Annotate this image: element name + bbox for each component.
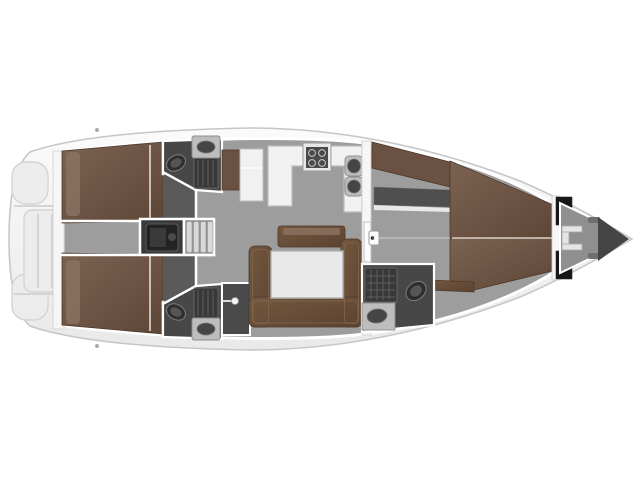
engine-room — [140, 219, 184, 255]
v-berth-upper — [450, 161, 556, 238]
yacht-floor-plan — [0, 0, 640, 480]
bow-tip-locker — [598, 217, 629, 261]
shower-head — [232, 298, 239, 305]
stove — [303, 143, 331, 171]
transom-molding-top — [12, 162, 48, 204]
stall-floor — [222, 283, 250, 335]
sink-port — [197, 141, 215, 153]
shower-stall-starboard — [222, 283, 250, 335]
sideboard — [278, 226, 345, 247]
head-forward — [362, 264, 434, 332]
pillow-starboard-aft — [66, 260, 80, 324]
galley-sinks — [345, 156, 363, 196]
companionway-steps — [184, 219, 214, 255]
windlass-arm-top — [562, 226, 582, 232]
engine-pulley — [168, 233, 176, 241]
stern-cleat-starboard — [95, 344, 99, 348]
engine-detail — [150, 228, 166, 247]
step-1 — [187, 222, 193, 253]
storage-cabinet — [240, 149, 263, 201]
stern-cleat-port — [95, 128, 99, 132]
sink-stbd — [197, 323, 215, 335]
cabinet-body — [240, 149, 263, 201]
pillow-port-aft — [66, 152, 80, 216]
step-4 — [208, 222, 214, 253]
windlass-arm-bottom — [562, 244, 582, 250]
fore-peak-anchor-locker — [552, 196, 629, 280]
step-3 — [201, 222, 207, 253]
galley-sink-1 — [348, 159, 361, 173]
sideboard-top — [283, 228, 340, 235]
step-2 — [194, 222, 200, 253]
galley-sink-2 — [348, 180, 361, 193]
wardrobe-port — [222, 150, 240, 190]
salon-table — [271, 251, 343, 298]
vanity-desk — [374, 187, 450, 207]
